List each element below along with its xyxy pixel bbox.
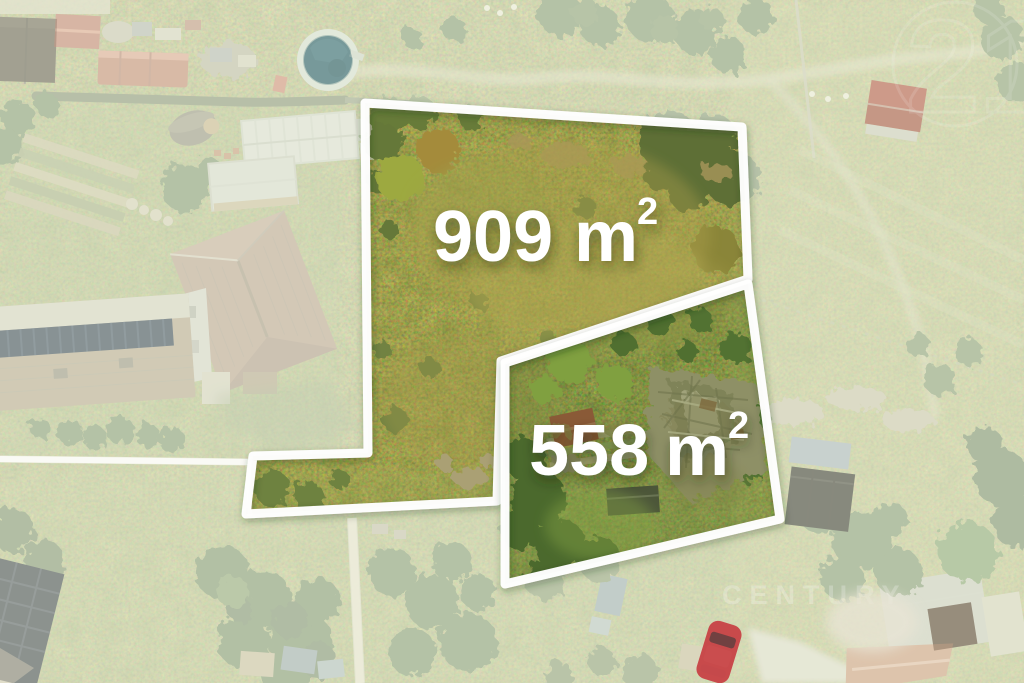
svg-text:21: 21 [906,0,1024,140]
svg-text:m: m [574,197,638,277]
svg-text:2: 2 [728,405,749,447]
svg-text:558: 558 [529,411,649,491]
svg-text:m: m [665,411,729,491]
svg-text:909: 909 [433,197,553,277]
svg-text:2: 2 [637,191,658,233]
